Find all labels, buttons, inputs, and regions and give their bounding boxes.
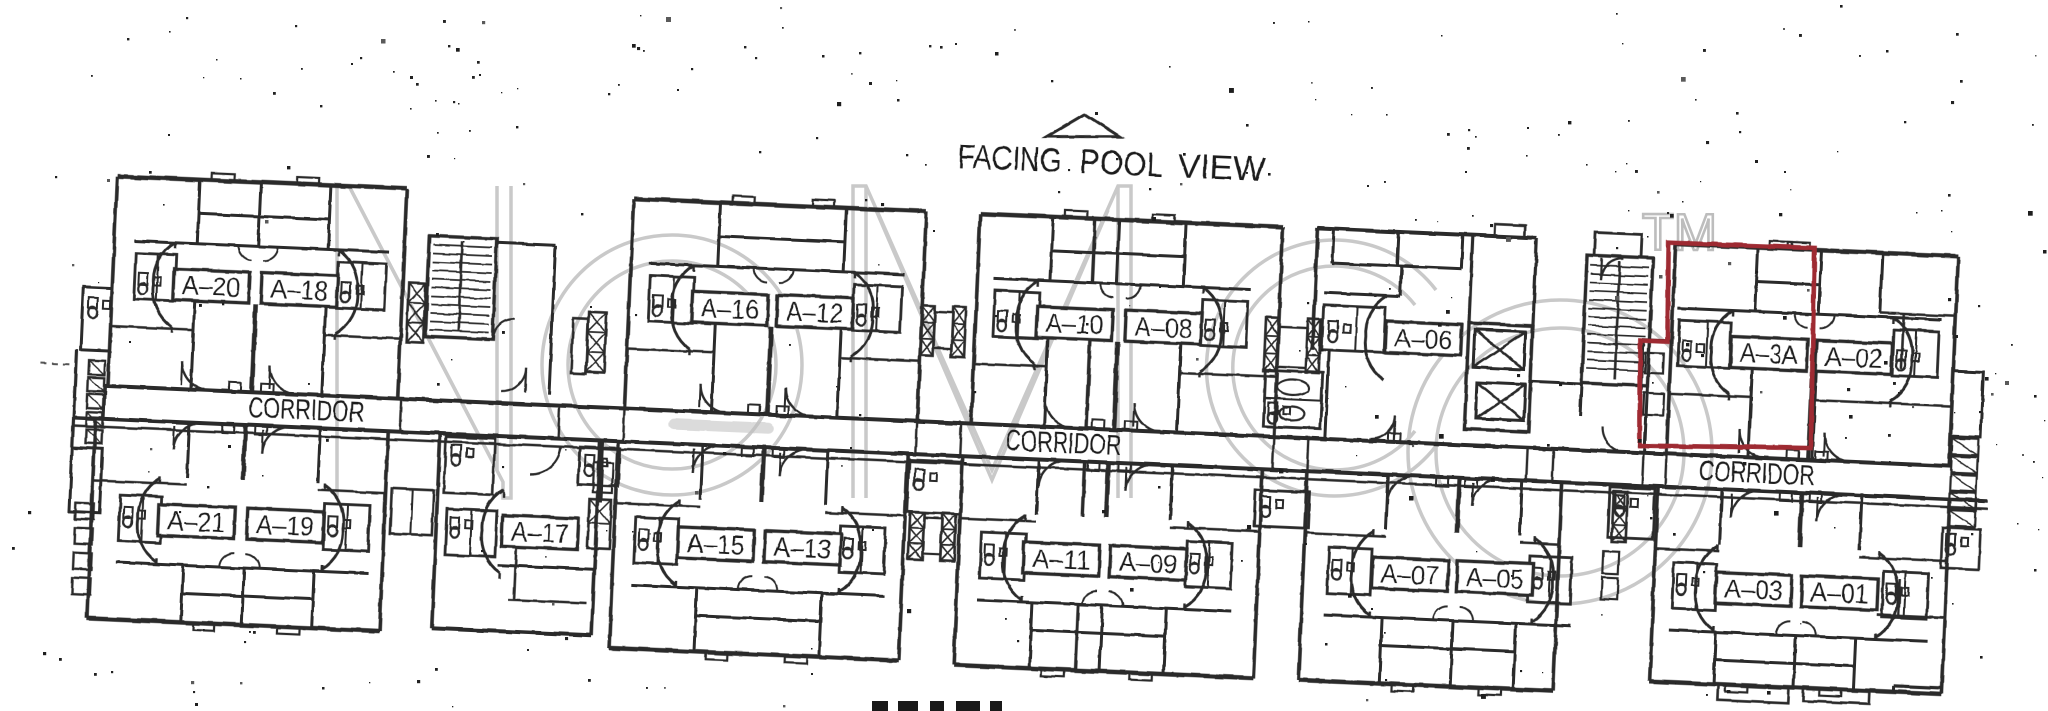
svg-text:A–18: A–18 xyxy=(270,274,329,306)
svg-text:CORRIDOR: CORRIDOR xyxy=(1005,425,1122,462)
svg-text:A–03: A–03 xyxy=(1724,573,1783,605)
svg-text:A–05: A–05 xyxy=(1465,562,1524,594)
svg-text:A–11: A–11 xyxy=(1032,543,1091,575)
svg-text:A–16: A–16 xyxy=(700,293,759,325)
svg-text:A–20: A–20 xyxy=(182,270,241,302)
svg-text:TM: TM xyxy=(1642,204,1717,262)
svg-text:A–3A: A–3A xyxy=(1739,338,1798,370)
svg-text:A–01: A–01 xyxy=(1810,577,1869,609)
svg-text:CORRIDOR: CORRIDOR xyxy=(1698,455,1815,492)
svg-text:A–21: A–21 xyxy=(167,506,226,538)
svg-text:VIEW: VIEW xyxy=(1177,147,1267,189)
svg-text:CORRIDOR: CORRIDOR xyxy=(247,392,364,429)
svg-text:FACING: FACING xyxy=(957,138,1063,180)
svg-text:A–07: A–07 xyxy=(1380,558,1439,590)
svg-text:A–06: A–06 xyxy=(1394,323,1453,355)
svg-text:POOL: POOL xyxy=(1079,143,1165,185)
svg-text:A–02: A–02 xyxy=(1824,342,1883,374)
svg-text:A–09: A–09 xyxy=(1119,547,1178,579)
svg-text:A–19: A–19 xyxy=(255,510,314,542)
svg-text:A–17: A–17 xyxy=(510,517,569,549)
svg-text:A–10: A–10 xyxy=(1045,308,1104,340)
svg-text:A–13: A–13 xyxy=(773,532,832,564)
svg-text:A–12: A–12 xyxy=(785,296,844,328)
svg-text:A–15: A–15 xyxy=(686,528,745,560)
svg-text:A–08: A–08 xyxy=(1134,312,1193,344)
